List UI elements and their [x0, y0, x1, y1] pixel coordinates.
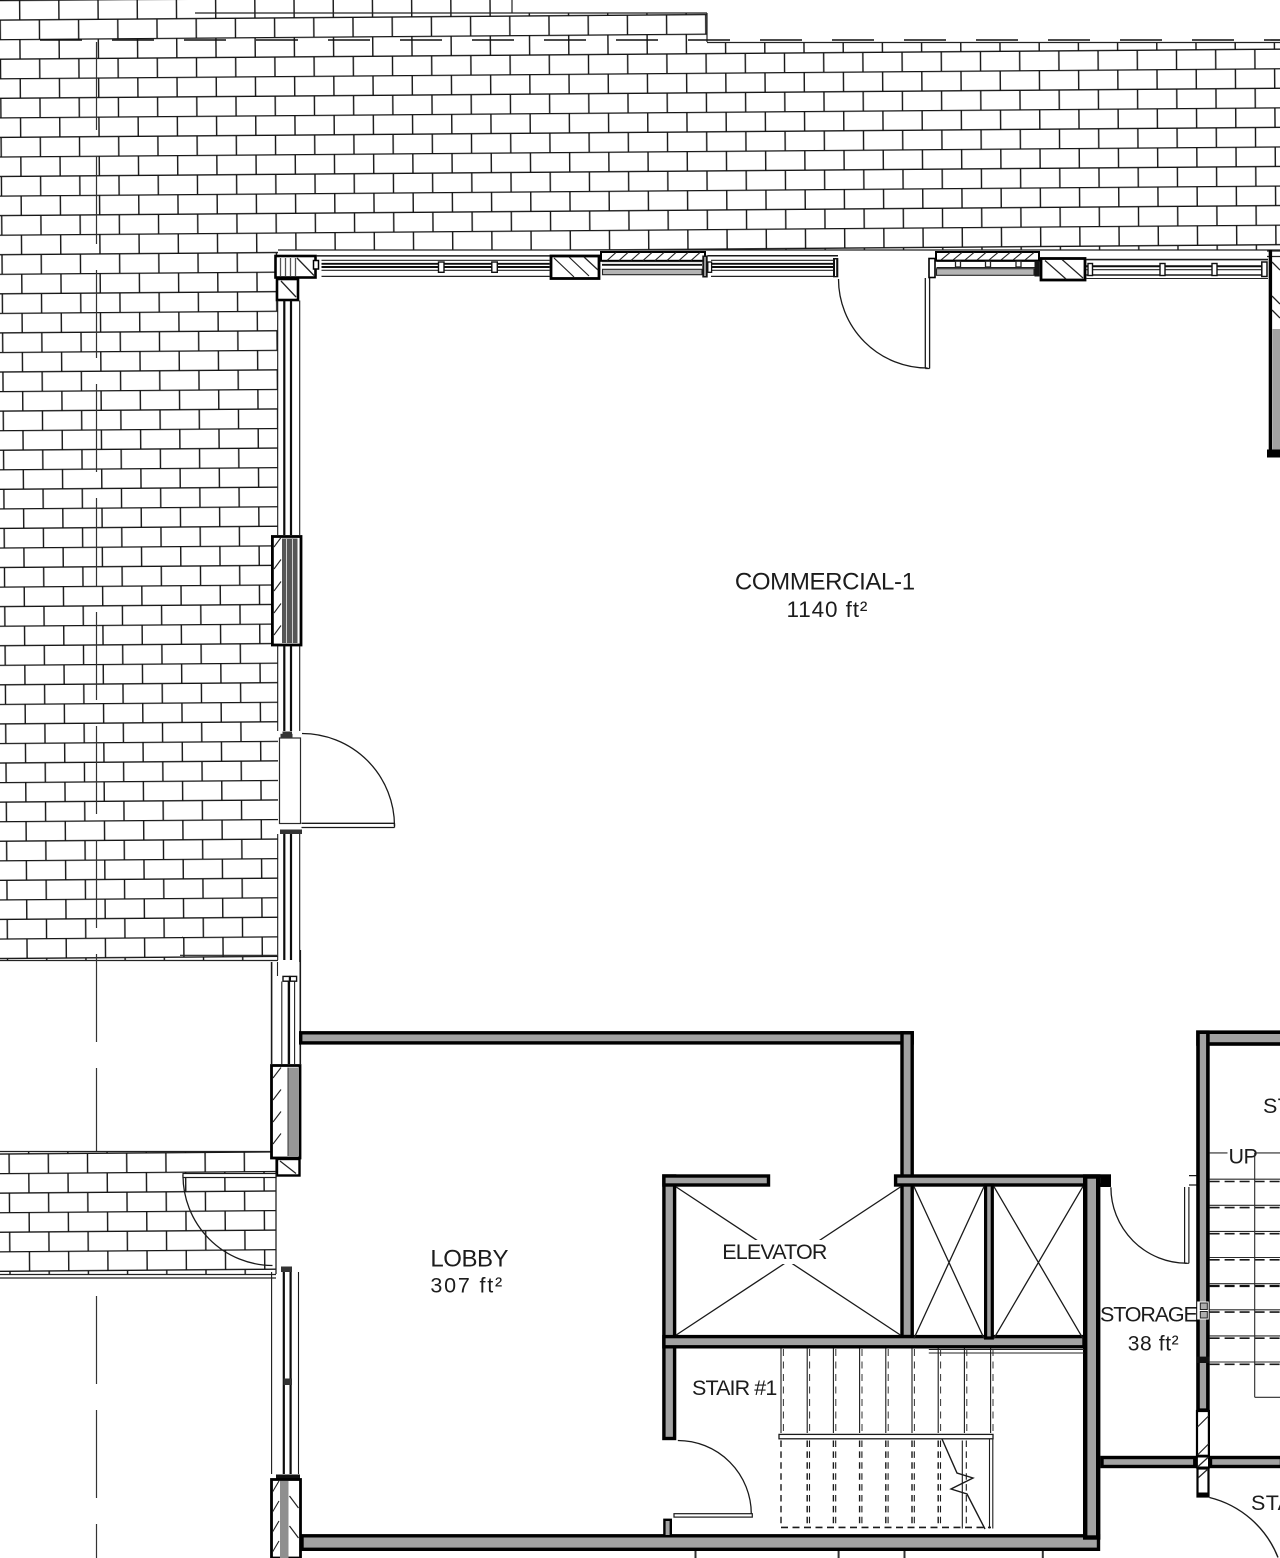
svg-text:STAIR #2: STAIR #2	[1251, 1491, 1280, 1515]
svg-text:STAIR #2: STAIR #2	[1263, 1094, 1280, 1118]
svg-text:UP: UP	[1229, 1145, 1258, 1169]
svg-text:ELEVATOR: ELEVATOR	[722, 1240, 827, 1264]
svg-text:STAIR #1: STAIR #1	[692, 1376, 776, 1400]
svg-text:STORAGE: STORAGE	[1100, 1303, 1197, 1327]
svg-text:COMMERCIAL-1: COMMERCIAL-1	[735, 569, 915, 596]
svg-text:38 ft²: 38 ft²	[1128, 1333, 1179, 1356]
svg-text:LOBBY: LOBBY	[430, 1245, 508, 1272]
svg-text:1140 ft²: 1140 ft²	[786, 597, 868, 622]
svg-text:307 ft²: 307 ft²	[430, 1274, 504, 1298]
